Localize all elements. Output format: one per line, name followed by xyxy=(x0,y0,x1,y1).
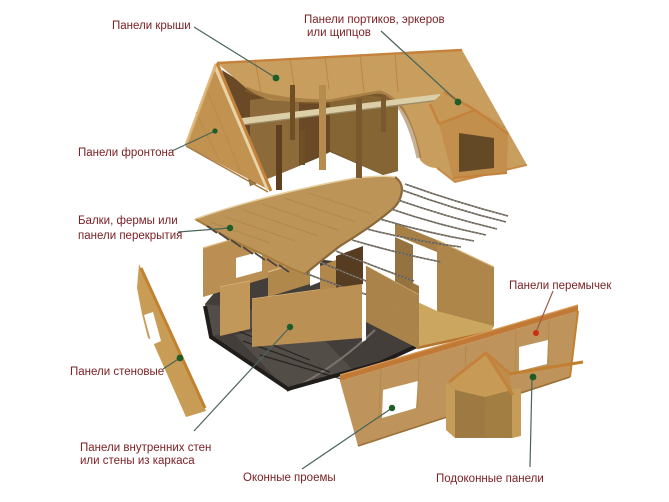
svg-text:Оконные проемы: Оконные проемы xyxy=(243,472,336,484)
svg-text:Панели перемычек: Панели перемычек xyxy=(509,280,612,292)
svg-text:Панели внутренних стен: Панели внутренних стен xyxy=(80,442,211,454)
svg-text:Балки, фермы или: Балки, фермы или xyxy=(78,215,178,227)
svg-text:Панели фронтона: Панели фронтона xyxy=(78,147,175,159)
svg-text:или стены из каркаса: или стены из каркаса xyxy=(80,455,195,467)
svg-text:или щипцов: или щипцов xyxy=(307,27,371,39)
svg-text:Панели крыши: Панели крыши xyxy=(112,20,191,32)
svg-text:Панели портиков, эркеров: Панели портиков, эркеров xyxy=(304,14,445,26)
svg-text:Панели стеновые: Панели стеновые xyxy=(70,366,164,378)
svg-text:панели перекрытия: панели перекрытия xyxy=(78,230,182,242)
svg-text:Подоконные панели: Подоконные панели xyxy=(436,473,544,485)
